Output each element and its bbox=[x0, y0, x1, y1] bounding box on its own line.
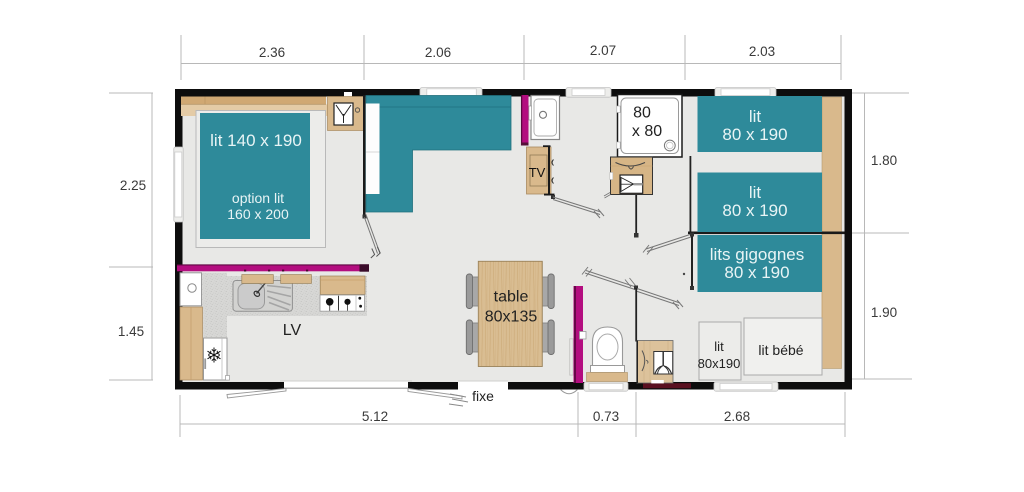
svg-text:1.80: 1.80 bbox=[871, 153, 897, 168]
svg-text:2.25: 2.25 bbox=[120, 178, 146, 193]
svg-text:lit bébé: lit bébé bbox=[758, 342, 803, 358]
svg-text:table: table bbox=[494, 289, 529, 306]
svg-text:lit 140 x 190: lit 140 x 190 bbox=[210, 131, 302, 150]
svg-text:80x135: 80x135 bbox=[485, 309, 538, 326]
svg-text:80: 80 bbox=[633, 105, 651, 122]
svg-text:x 80: x 80 bbox=[632, 123, 662, 140]
svg-text:option lit: option lit bbox=[232, 190, 284, 206]
svg-text:TV: TV bbox=[529, 165, 546, 180]
svg-text:160 x 200: 160 x 200 bbox=[227, 206, 289, 222]
svg-text:1.90: 1.90 bbox=[871, 305, 897, 320]
svg-text:lits gigognes: lits gigognes bbox=[710, 245, 805, 264]
svg-text:lit: lit bbox=[749, 183, 762, 202]
svg-text:2.03: 2.03 bbox=[749, 44, 775, 59]
svg-text:80 x 190: 80 x 190 bbox=[722, 125, 787, 144]
svg-text:80 x 190: 80 x 190 bbox=[722, 201, 787, 220]
svg-text:2.06: 2.06 bbox=[425, 45, 451, 60]
svg-text:lit: lit bbox=[714, 339, 724, 354]
svg-text:LV: LV bbox=[283, 322, 302, 339]
svg-text:80 x 190: 80 x 190 bbox=[724, 263, 789, 282]
svg-text:80x190: 80x190 bbox=[698, 356, 741, 371]
svg-text:2.68: 2.68 bbox=[724, 409, 750, 424]
svg-text:0.73: 0.73 bbox=[593, 409, 619, 424]
svg-text:1.45: 1.45 bbox=[118, 324, 144, 339]
svg-text:5.12: 5.12 bbox=[362, 409, 388, 424]
svg-text:fixe: fixe bbox=[472, 388, 494, 404]
svg-text:2.07: 2.07 bbox=[590, 43, 616, 58]
svg-text:2.36: 2.36 bbox=[259, 45, 285, 60]
svg-text:lit: lit bbox=[749, 107, 762, 126]
